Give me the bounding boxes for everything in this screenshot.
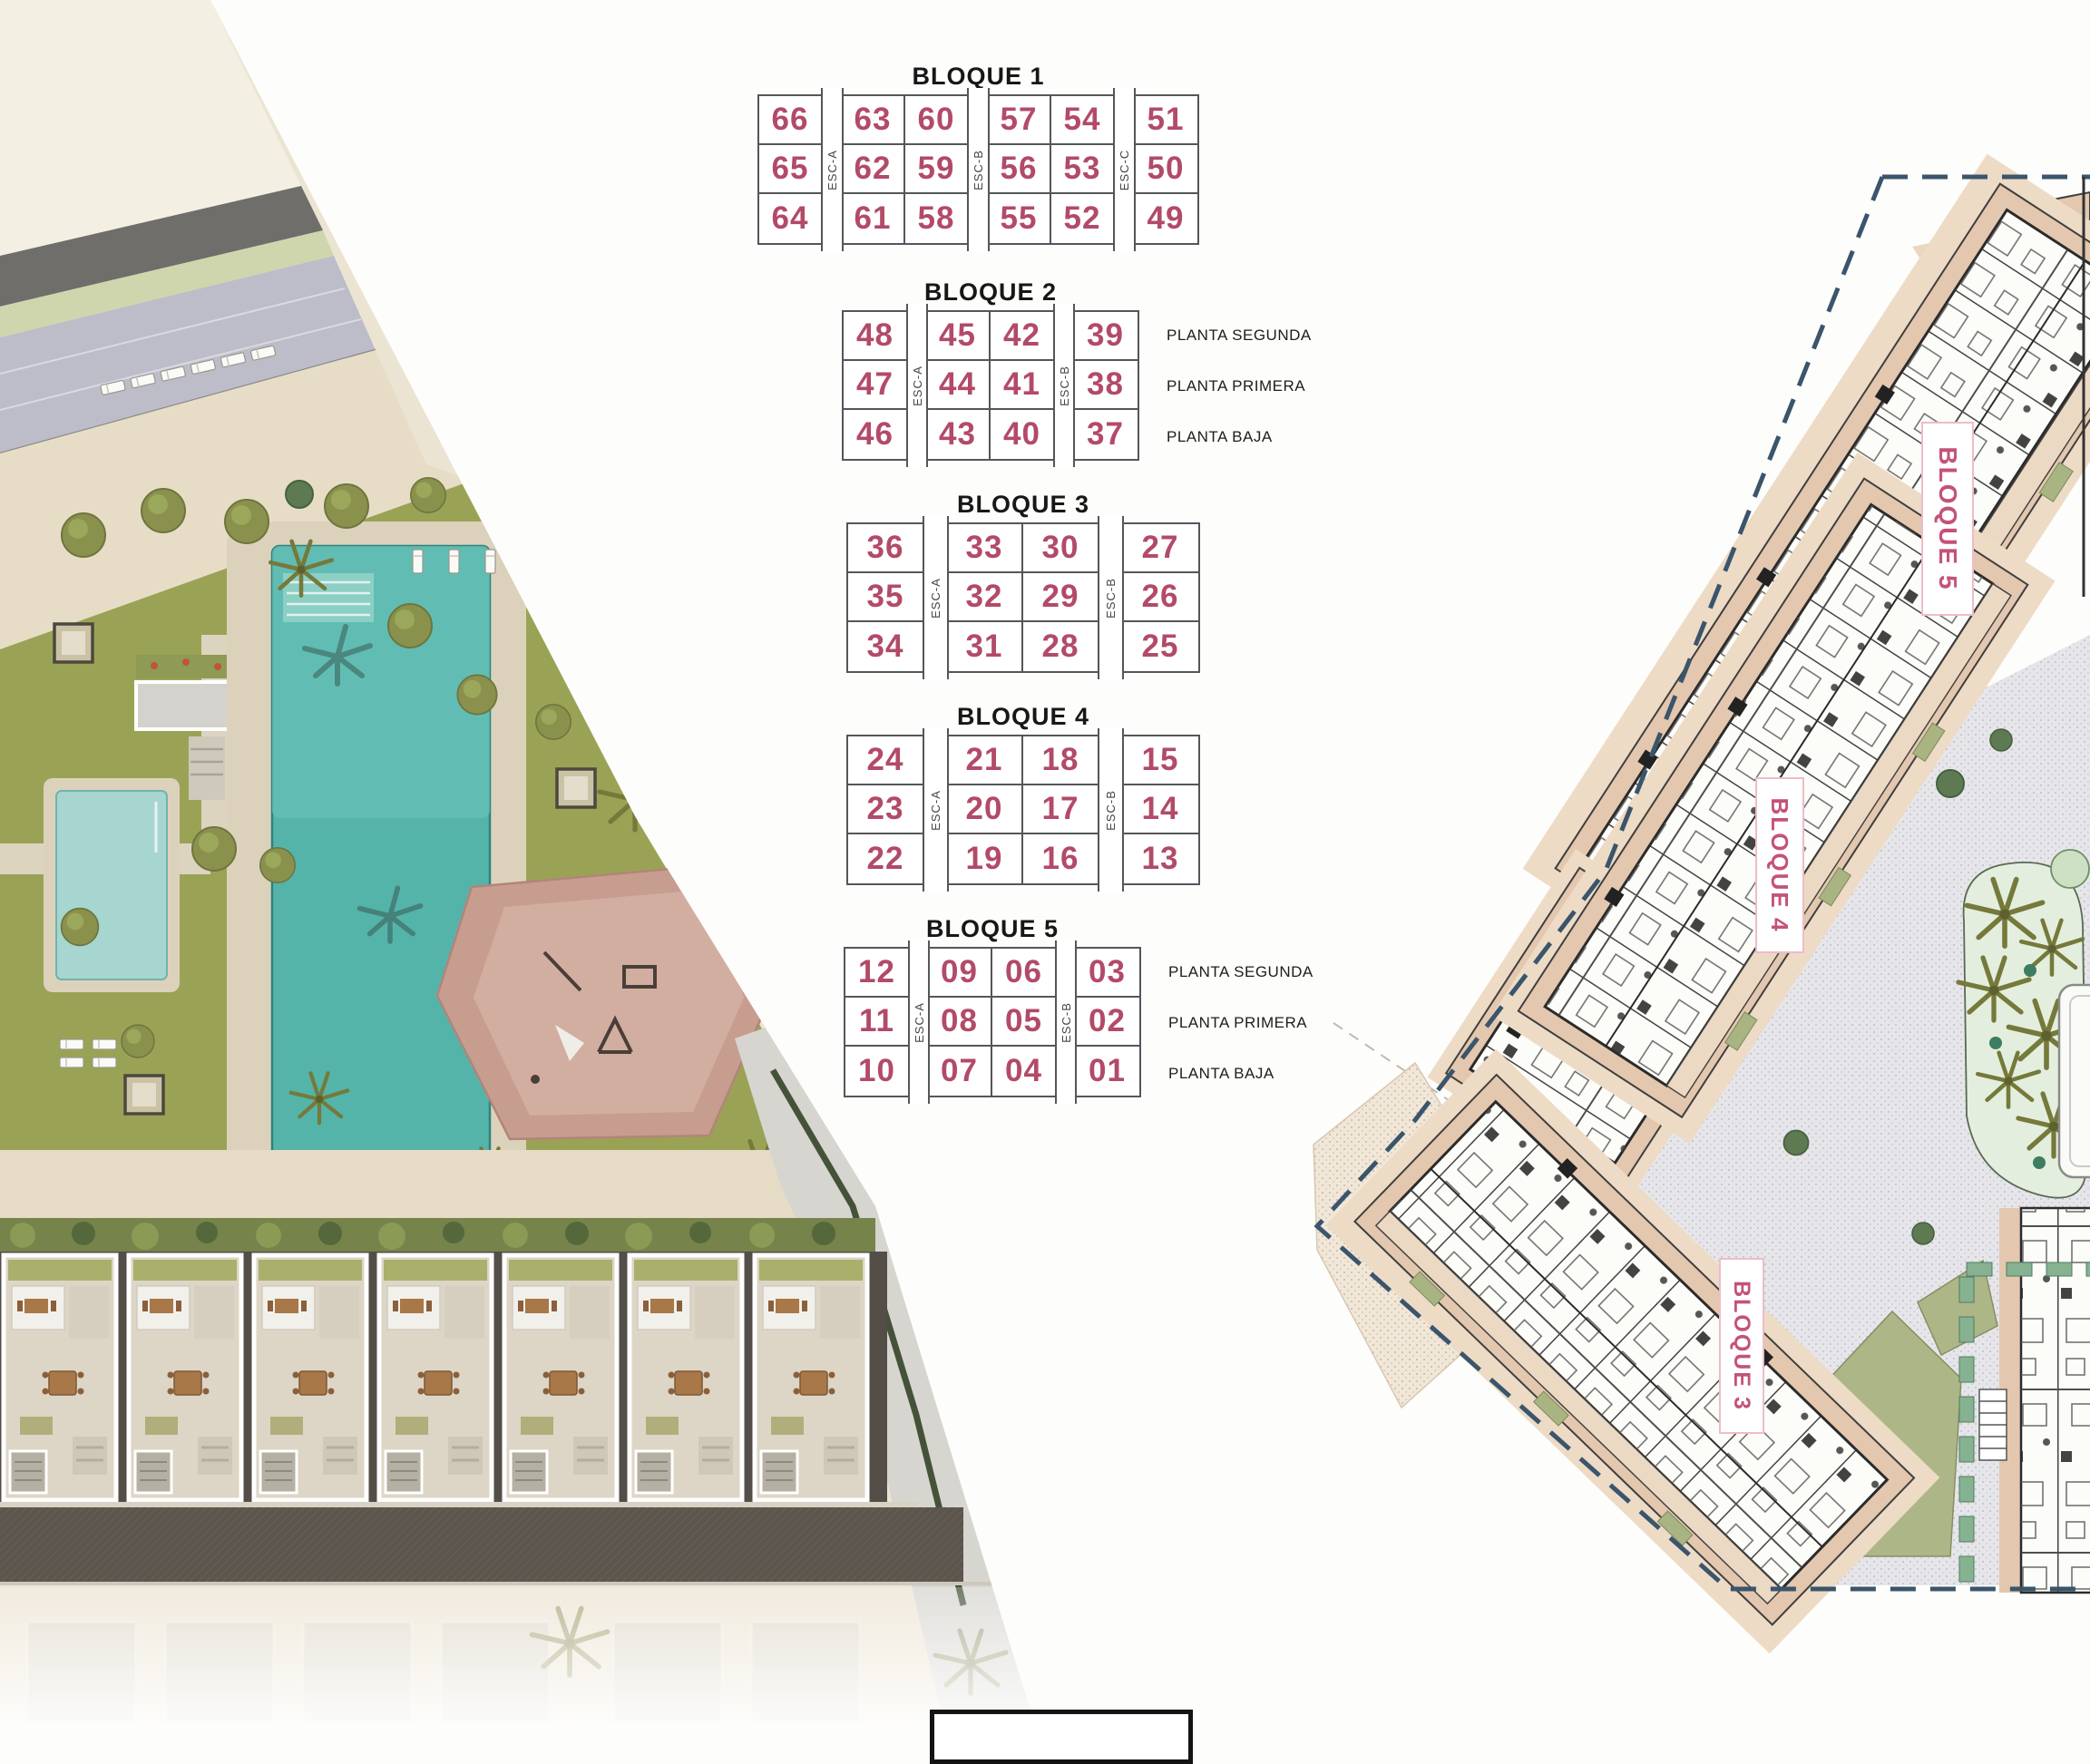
esc-label: ESC-B [1058,365,1071,406]
unit-cell: 49 [1134,194,1197,243]
unit-cell: 16 [1023,834,1099,883]
unit-cell: 35 [848,573,924,622]
unit-cell: 60 [905,96,969,145]
unit-cell: 57 [988,96,1051,145]
stair-column: ESC-B [967,88,990,251]
unit-cell: 10 [845,1047,910,1096]
unit-cell: 42 [991,312,1055,361]
esc-label: ESC-B [972,150,985,190]
kids-pool [56,791,167,979]
unit-cell: 39 [1073,312,1138,361]
unit-cell: 27 [1122,524,1198,573]
stair-column: ESC-A [906,304,928,467]
block-title: BLOQUE 2 [842,278,1139,310]
planta-label: PLANTA SEGUNDA [1167,310,1312,361]
stair-column: ESC-A [923,728,949,892]
unit-cell: 25 [1122,622,1198,671]
unit-cell: 45 [926,312,991,361]
block-title: BLOQUE 4 [846,702,1200,735]
esc-label: ESC-A [825,150,839,190]
planta-label: PLANTA PRIMERA [1167,361,1312,412]
unit-cell: 32 [947,573,1023,622]
unit-cell: 65 [759,145,823,194]
planta-labels: PLANTA SEGUNDAPLANTA PRIMERAPLANTA BAJA [1167,310,1312,463]
unit-cell: 29 [1023,573,1099,622]
unit-cell: 08 [928,998,992,1047]
stair-column: ESC-C [1113,88,1136,251]
unit-cell: 51 [1134,96,1197,145]
unit-cell: 21 [947,736,1023,785]
unit-cell: 44 [926,361,991,410]
unit-cell: 26 [1122,573,1198,622]
unit-cell: 63 [842,96,905,145]
stair-column: ESC-B [1098,516,1124,679]
unit-cell: 61 [842,194,905,243]
unit-cell: 03 [1075,949,1139,998]
unit-cell: 04 [992,1047,1057,1096]
unit-cell: 06 [992,949,1057,998]
unit-cell: 18 [1023,736,1099,785]
stair-column: ESC-A [821,88,844,251]
esc-label: ESC-A [929,790,942,831]
esc-label: ESC-A [911,365,924,406]
unit-cell: 19 [947,834,1023,883]
legend-box-cutoff [930,1710,1193,1764]
unit-cell: 58 [905,194,969,243]
stair-column: ESC-B [1053,304,1075,467]
unit-cell: 41 [991,361,1055,410]
unit-cell: 33 [947,524,1023,573]
stair-column: ESC-B [1055,940,1077,1104]
unit-cell: 66 [759,96,823,145]
unit-cell: 46 [844,410,908,459]
unit-cell: 47 [844,361,908,410]
unit-cell: 14 [1122,785,1198,834]
unit-cell: 02 [1075,998,1139,1047]
unit-cell: 53 [1051,145,1115,194]
unit-cell: 20 [947,785,1023,834]
unit-cell: 28 [1023,622,1099,671]
unit-cell: 62 [842,145,905,194]
esc-label: ESC-C [1118,149,1131,190]
plan-label-bloque-3: BLOQUE 3 [1719,1258,1764,1434]
unit-cell: 37 [1073,410,1138,459]
townhouse-row [0,1252,887,1507]
bloque-1-table: BLOQUE 1666564ESC-A636261605958ESC-B5756… [757,62,1199,245]
bloque-5-table: BLOQUE 5121110ESC-A090807060504ESC-B0302… [844,914,1141,1097]
block-title: BLOQUE 5 [844,914,1141,947]
stair-column: ESC-B [1098,728,1124,892]
unit-cell: 15 [1122,736,1198,785]
planta-labels: PLANTA SEGUNDAPLANTA PRIMERAPLANTA BAJA [1168,947,1314,1099]
planta-label: PLANTA PRIMERA [1168,998,1314,1048]
planta-label: PLANTA BAJA [1167,412,1312,463]
planta-label: PLANTA SEGUNDA [1168,947,1314,998]
unit-cell: 40 [991,410,1055,459]
unit-cell: 34 [848,622,924,671]
bloque-2-table: BLOQUE 2484746ESC-A454443424140ESC-B3938… [842,278,1139,461]
stair-column: ESC-A [923,516,949,679]
unit-cell: 12 [845,949,910,998]
unit-cell: 54 [1051,96,1115,145]
unit-cell: 11 [845,998,910,1047]
unit-cell: 38 [1073,361,1138,410]
block-title: BLOQUE 3 [846,490,1200,522]
esc-label: ESC-A [929,578,942,619]
unit-cell: 64 [759,194,823,243]
unit-cell: 01 [1075,1047,1139,1096]
unit-cell: 30 [1023,524,1099,573]
plan-label-bloque-5: BLOQUE 5 [1921,422,1974,616]
unit-cell: 05 [992,998,1057,1047]
bloque-3-table: BLOQUE 3363534ESC-A333231302928ESC-B2726… [846,490,1200,673]
bloque-4-table: BLOQUE 4242322ESC-A212019181716ESC-B1514… [846,702,1200,885]
brochure-page: BLOQUE 1666564ESC-A636261605958ESC-B5756… [0,0,2090,1723]
unit-cell: 50 [1134,145,1197,194]
unit-cell: 56 [988,145,1051,194]
unit-cell: 13 [1122,834,1198,883]
unit-cell: 59 [905,145,969,194]
planta-label: PLANTA BAJA [1168,1048,1314,1099]
unit-cell: 09 [928,949,992,998]
esc-label: ESC-B [1104,578,1118,619]
esc-label: ESC-A [913,1002,926,1043]
unit-cell: 31 [947,622,1023,671]
unit-cell: 24 [848,736,924,785]
unit-cell: 52 [1051,194,1115,243]
stair-column: ESC-A [908,940,930,1104]
unit-cell: 07 [928,1047,992,1096]
unit-cell: 55 [988,194,1051,243]
unit-cell: 22 [848,834,924,883]
unit-cell: 23 [848,785,924,834]
unit-cell: 43 [926,410,991,459]
site-plan [1314,154,2090,1654]
unit-cell: 36 [848,524,924,573]
plan-label-bloque-4: BLOQUE 4 [1755,777,1804,953]
esc-label: ESC-B [1060,1002,1073,1043]
plaza-pool [2059,985,2090,1177]
unit-cell: 48 [844,312,908,361]
esc-label: ESC-B [1104,790,1118,831]
unit-cell: 17 [1023,785,1099,834]
